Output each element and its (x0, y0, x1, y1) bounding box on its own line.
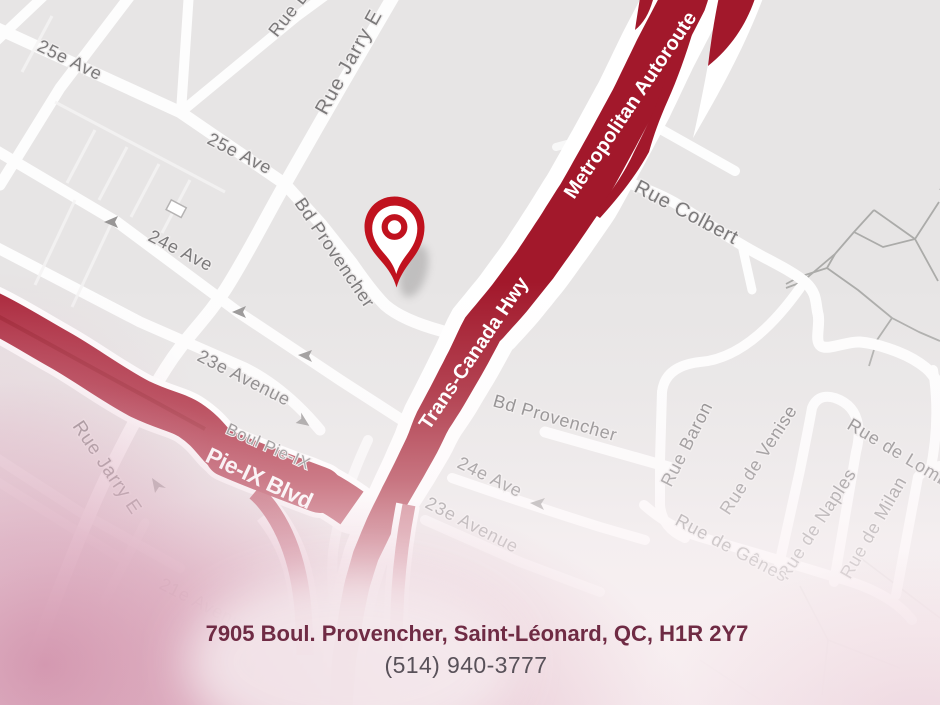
svg-text:7905 Boul. Provencher, Saint-L: 7905 Boul. Provencher, Saint-Léonard, QC… (206, 621, 749, 646)
svg-text:(514) 940-3777: (514) 940-3777 (385, 652, 548, 678)
